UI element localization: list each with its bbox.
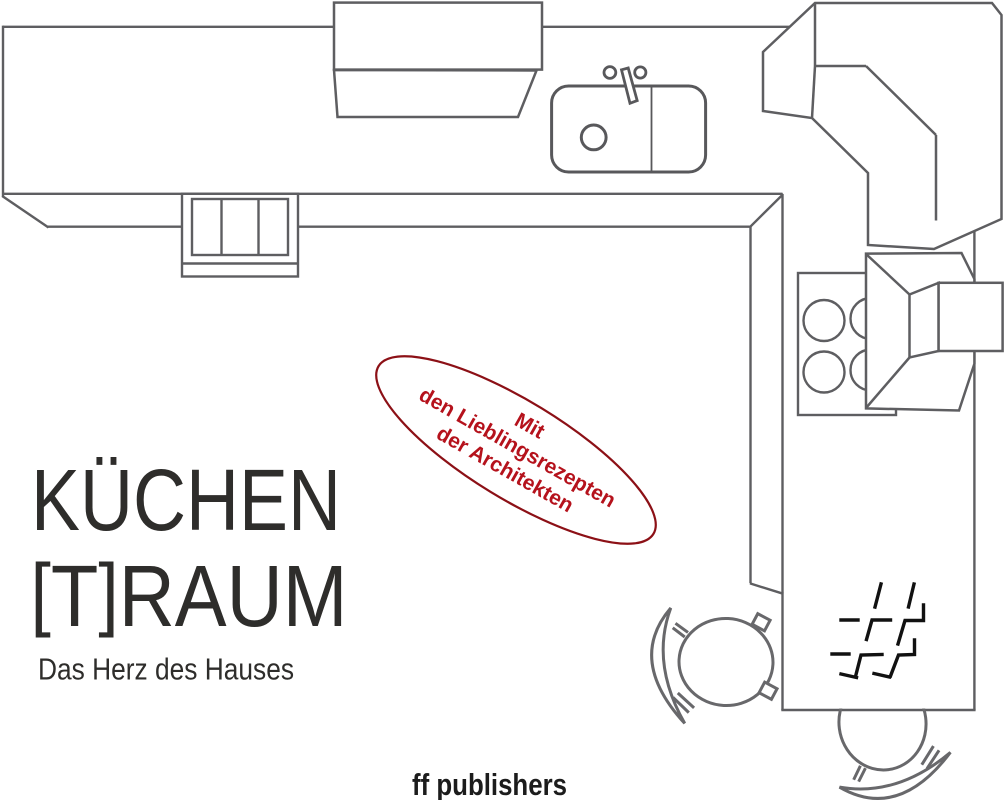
svg-text:KÜCHEN: KÜCHEN xyxy=(31,452,341,549)
svg-text:ff publishers: ff publishers xyxy=(412,767,567,800)
svg-text:[T]RAUM: [T]RAUM xyxy=(31,547,348,645)
svg-text:Das Herz des Hauses: Das Herz des Hauses xyxy=(38,652,294,687)
